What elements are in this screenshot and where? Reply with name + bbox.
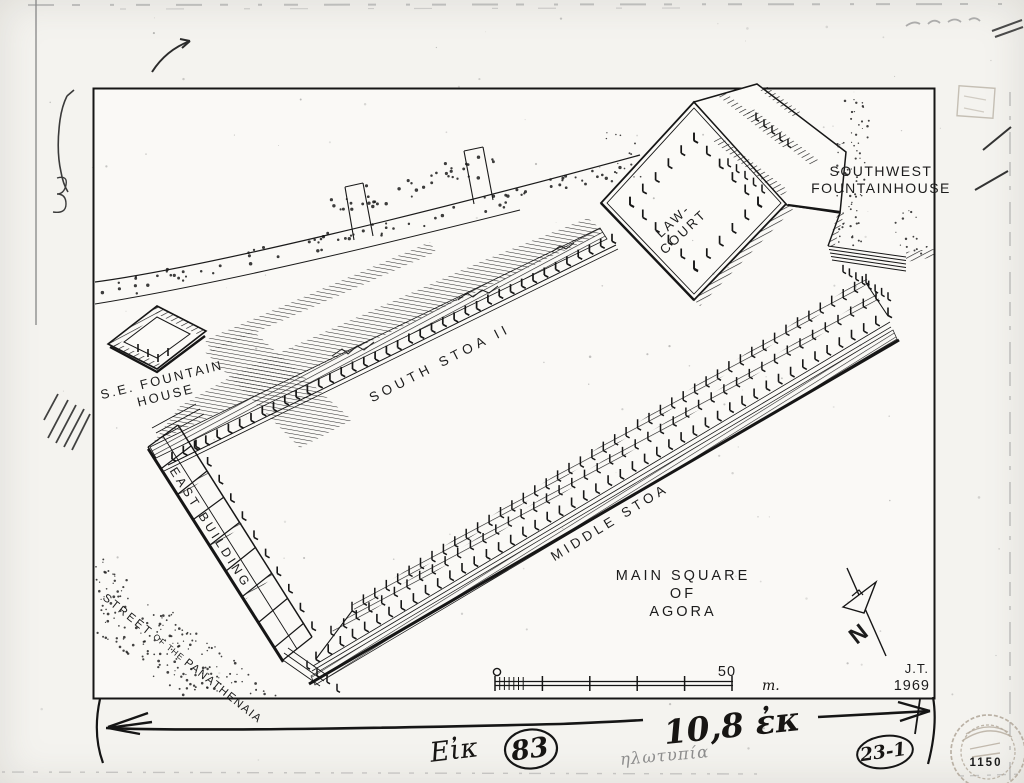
handwritten-annotations: 10,8 ἐκ Εἰκ 83 ηλωτυπία 23-1 1150	[97, 697, 1024, 783]
catalog-number-circled: 23-1	[855, 732, 915, 771]
svg-text:MAIN SQUARE: MAIN SQUARE	[616, 568, 751, 584]
scale-unit: m.	[762, 678, 780, 694]
signature-initials: J.T.	[905, 661, 929, 676]
southwest-fountainhouse-label: SOUTHWEST FOUNTAINHOUSE	[811, 163, 951, 196]
library-stamp: 1150	[951, 715, 1024, 783]
faint-pencil-note: ηλωτυπία	[619, 742, 710, 769]
svg-text:SOUTHWEST: SOUTHWEST	[830, 163, 933, 179]
svg-text:AGORA: AGORA	[649, 604, 716, 620]
agora-south-side-axonometric-drawing: SOUTH STOA II MIDDLE STOA EAST BUILDING …	[0, 0, 1024, 783]
figure-abbr: Εἰκ	[427, 732, 480, 769]
stamp-number: 1150	[970, 757, 1003, 769]
signature-year: 1969	[894, 678, 930, 694]
scanned-archaeological-drawing: SOUTH STOA II MIDDLE STOA EAST BUILDING …	[0, 0, 1024, 783]
svg-text:FOUNTAINHOUSE: FOUNTAINHOUSE	[811, 180, 951, 196]
figure-number-circled: 83	[504, 728, 559, 771]
svg-text:OF: OF	[670, 586, 696, 602]
scale-end-value: 50	[718, 664, 736, 680]
svg-text:83: 83	[508, 732, 551, 768]
